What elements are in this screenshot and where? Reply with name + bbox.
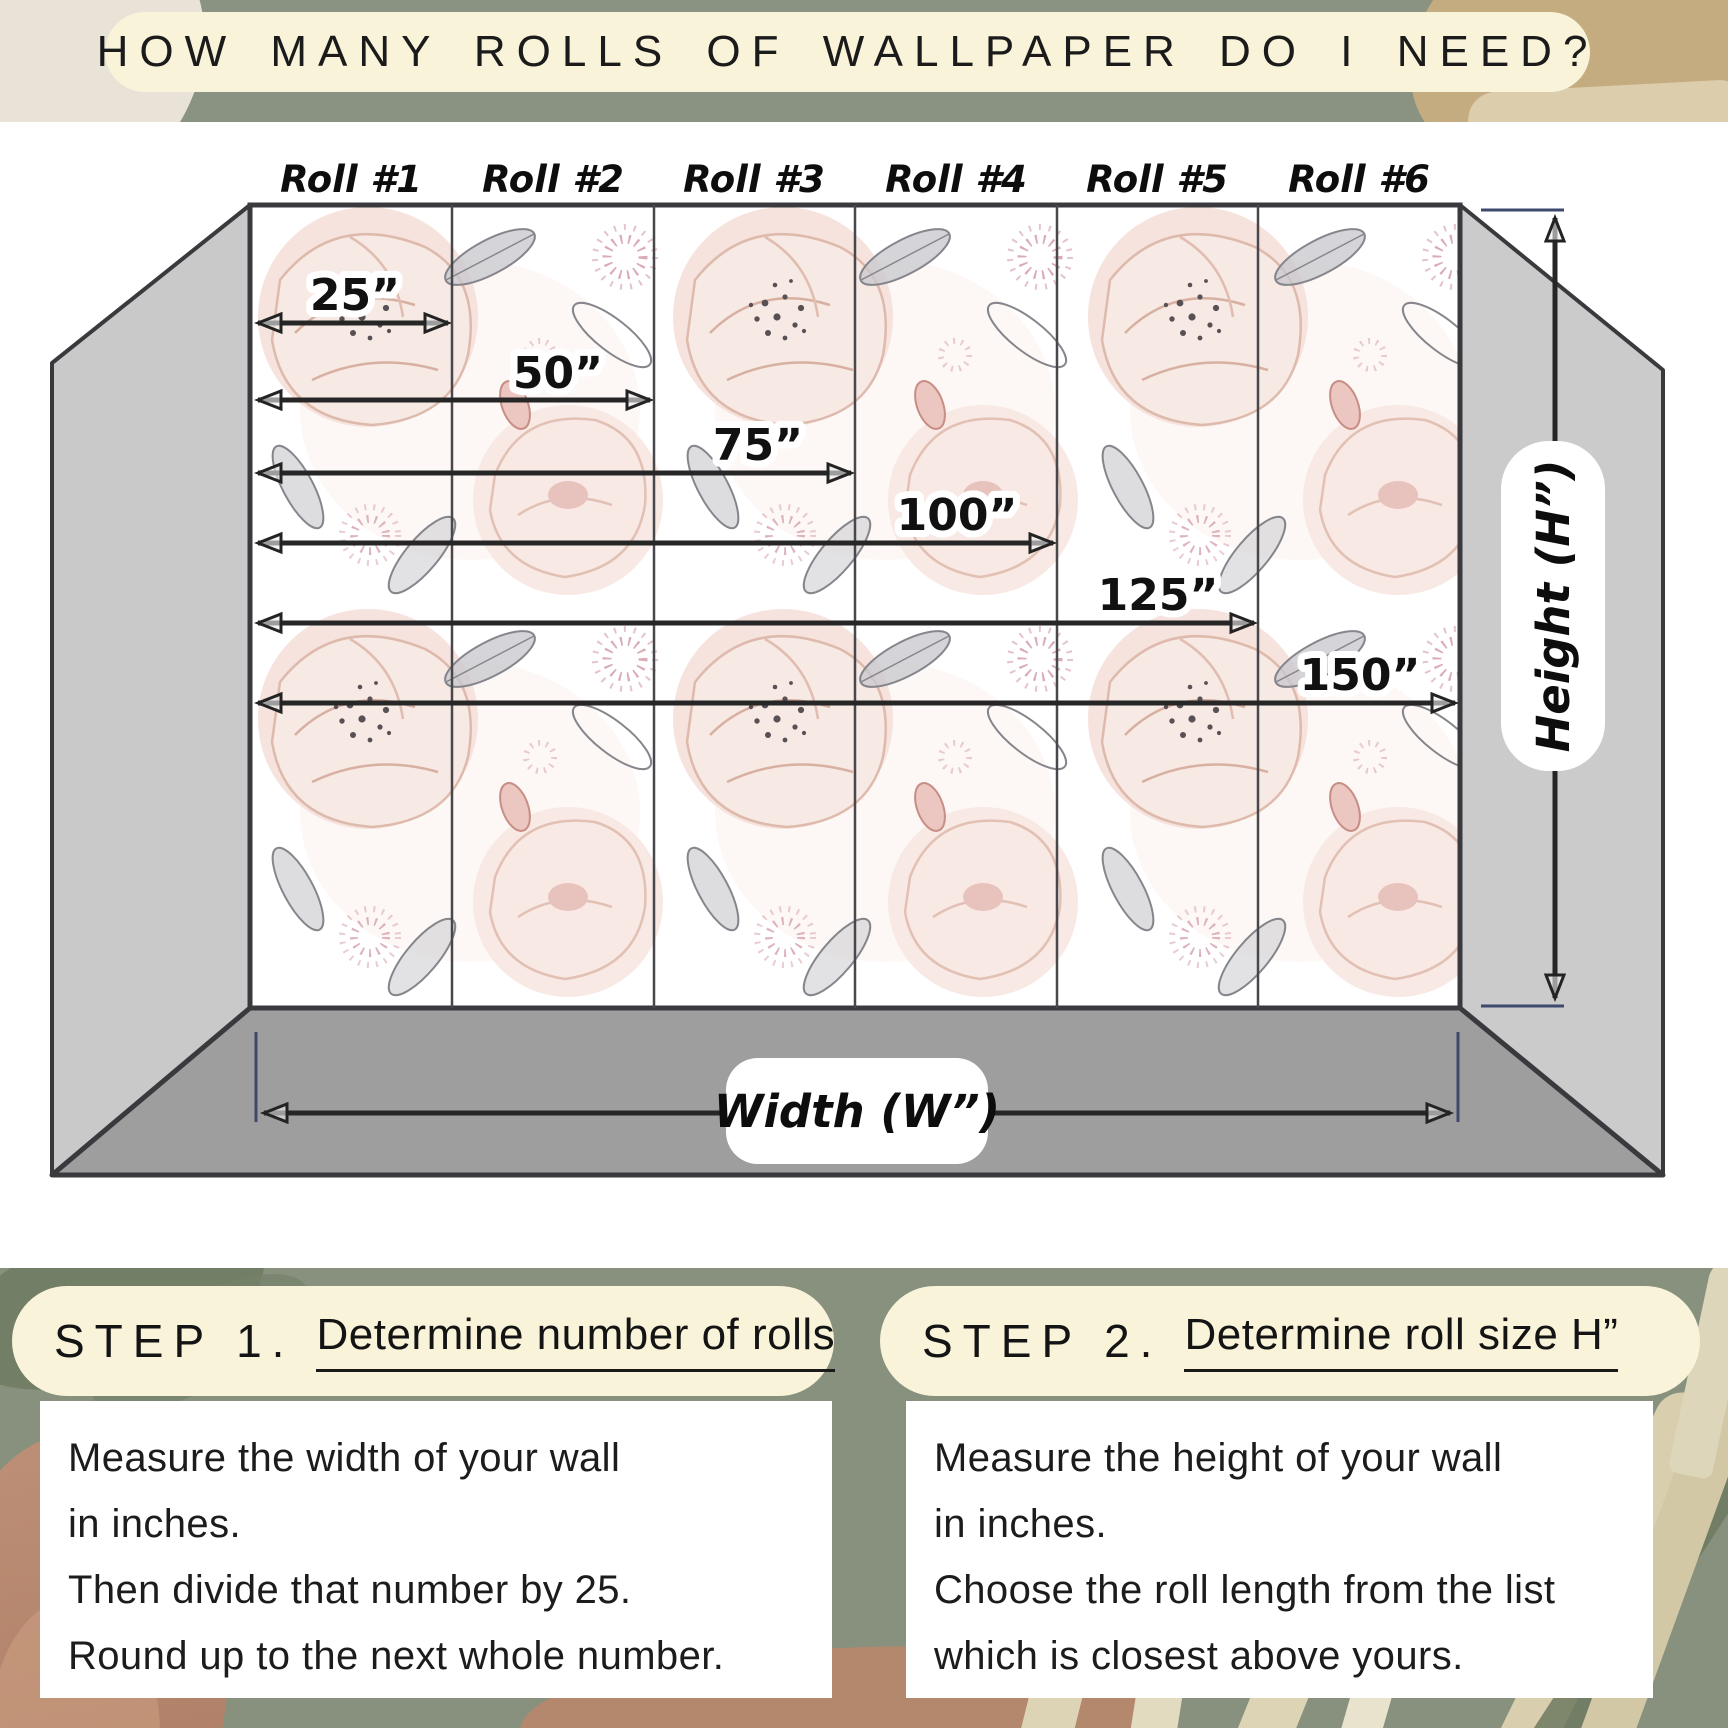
wallpaper-wall — [250, 205, 1460, 1008]
measurement-100-label: 100” — [897, 490, 1018, 541]
step2-card: Measure the height of your wall in inche… — [906, 1401, 1653, 1698]
width-label-pill — [726, 1058, 988, 1164]
roll-6-label: Roll #6 — [1288, 158, 1430, 201]
step2-line: in inches. — [934, 1491, 1653, 1557]
roll-4-label: Roll #4 — [885, 158, 1027, 201]
roll-dividers — [452, 205, 1258, 1008]
step2-heading: Determine roll size H” — [1184, 1310, 1618, 1372]
step1-line: Round up to the next whole number. — [68, 1623, 832, 1689]
measurement-75-label: 75” — [713, 420, 803, 471]
step2-line: Choose the roll length from the list — [934, 1557, 1653, 1623]
step1-line: Measure the width of your wall — [68, 1425, 832, 1491]
measurement-150-label: 150” — [1300, 650, 1421, 701]
step1-line: in inches. — [68, 1491, 832, 1557]
roll-5-label: Roll #5 — [1086, 158, 1228, 201]
roll-1-label: Roll #1 — [280, 158, 422, 201]
step2-label: STEP 2. — [922, 1314, 1162, 1368]
floor — [52, 1008, 1663, 1175]
step2-line: which is closest above yours. — [934, 1623, 1653, 1689]
width-label: Width (W”) — [714, 1085, 1000, 1138]
step1-header: STEP 1. Determine number of rolls — [12, 1286, 834, 1396]
left-side-wall — [52, 205, 250, 1175]
height-label-pill — [1501, 441, 1605, 771]
step2-header: STEP 2. Determine roll size H” — [880, 1286, 1700, 1396]
measurement-125-label: 125” — [1098, 570, 1219, 621]
right-side-wall — [1460, 205, 1663, 1175]
step1-line: Then divide that number by 25. — [68, 1557, 832, 1623]
title-banner: HOW MANY ROLLS OF WALLPAPER DO I NEED? — [105, 12, 1590, 92]
page-title: HOW MANY ROLLS OF WALLPAPER DO I NEED? — [97, 27, 1599, 77]
step1-card: Measure the width of your wall in inches… — [40, 1401, 832, 1698]
measurement-arrows — [258, 323, 1455, 703]
height-label: Height (H”) — [1527, 460, 1580, 753]
step1-heading: Determine number of rolls — [316, 1310, 835, 1372]
roll-3-label: Roll #3 — [683, 158, 825, 201]
measurement-25-label: 25” — [310, 270, 400, 321]
height-dimension: Height (H”) — [1481, 210, 1605, 1006]
width-dimension: Width (W”) — [256, 1032, 1458, 1164]
measurement-50-label: 50” — [513, 348, 603, 399]
step1-label: STEP 1. — [54, 1314, 294, 1368]
step2-line: Measure the height of your wall — [934, 1425, 1653, 1491]
roll-2-label: Roll #2 — [482, 158, 624, 201]
